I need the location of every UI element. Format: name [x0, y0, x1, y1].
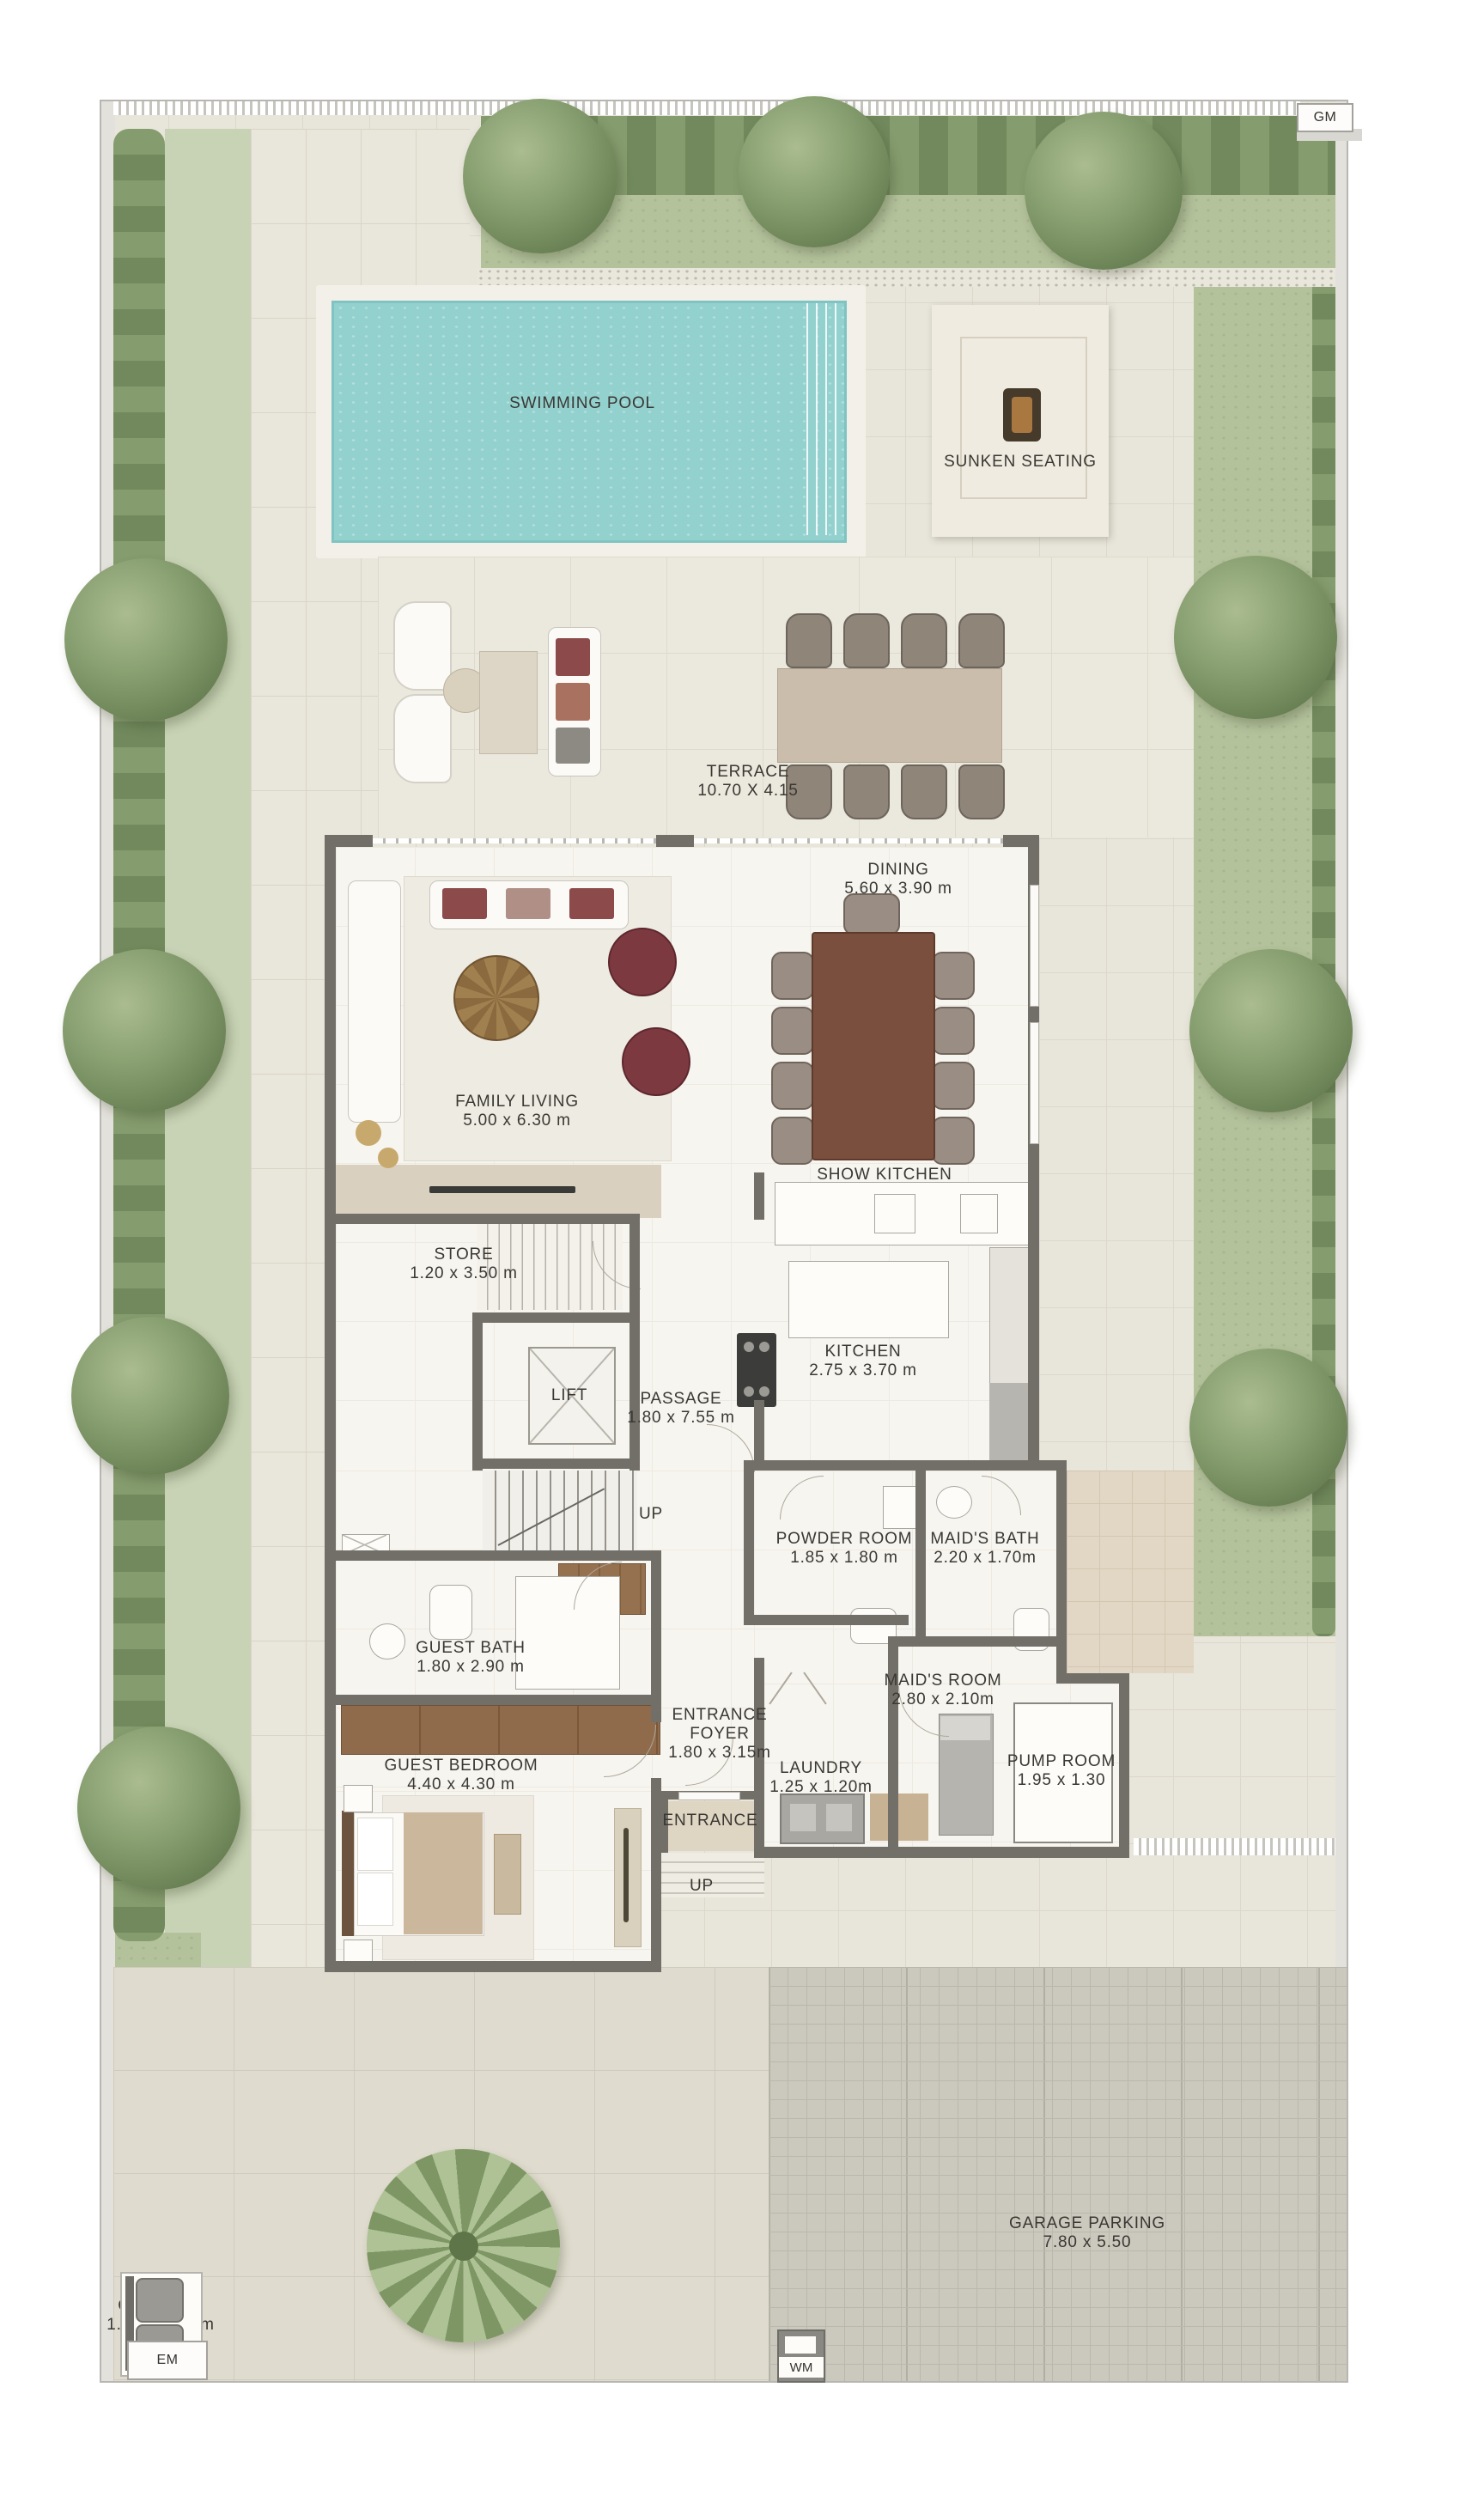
- dining-chair: [932, 952, 975, 1000]
- outdoor-sofa: [548, 627, 601, 776]
- fire-pit-coals: [1012, 397, 1032, 433]
- label-maids-bath: MAID'S BATH2.20 x 1.70m: [930, 1530, 1039, 1568]
- armchair: [608, 928, 677, 996]
- kitchen-sink: [960, 1194, 998, 1233]
- dining-table: [812, 932, 935, 1160]
- tree: [1189, 1349, 1347, 1507]
- label-terrace: TERRACE10.70 X 4.15: [697, 763, 798, 801]
- wall-segment: [336, 1695, 661, 1705]
- water-meter-window: [785, 2336, 816, 2354]
- wall-segment: [1119, 1673, 1129, 1858]
- electric-meter-label: EM: [157, 2353, 179, 2368]
- tree: [77, 1726, 240, 1890]
- label-dining: DINING5.60 x 3.90 m: [844, 861, 952, 898]
- coffee-table: [479, 651, 538, 754]
- outdoor-chair: [901, 613, 947, 668]
- tree: [1174, 556, 1337, 719]
- wall-segment: [754, 1847, 1129, 1858]
- floor-lamp: [356, 1120, 381, 1146]
- wall-segment: [744, 1471, 754, 1625]
- wall-segment: [915, 1471, 926, 1647]
- label-store: STORE1.20 x 3.50 m: [410, 1245, 518, 1283]
- garbage-bin: [136, 2278, 184, 2323]
- side-gate: [1134, 1838, 1335, 1855]
- label-kitchen: KITCHEN2.75 x 3.70 m: [809, 1343, 917, 1380]
- console-plant: [623, 1828, 629, 1922]
- living-sofa-side: [348, 880, 401, 1123]
- dining-chair: [932, 1062, 975, 1110]
- label-guest-bedroom: GUEST BEDROOM4.40 x 4.30 m: [385, 1757, 538, 1794]
- nightstand: [344, 1785, 373, 1812]
- outdoor-chair: [786, 613, 832, 668]
- outdoor-chair: [958, 764, 1005, 819]
- wall-segment: [336, 1550, 661, 1561]
- sliding-door: [1030, 1022, 1039, 1144]
- outdoor-dining-table: [777, 668, 1002, 763]
- wall-segment: [656, 835, 694, 847]
- wall-segment: [472, 1312, 483, 1471]
- sliding-door: [1030, 885, 1039, 1007]
- lounge-chair: [393, 601, 452, 691]
- pebble-strip: [477, 268, 1335, 287]
- water-meter-box: WM: [777, 2329, 825, 2383]
- tree: [64, 558, 228, 722]
- palm-tree: [367, 2149, 560, 2342]
- electric-meter-box: EM: [127, 2341, 208, 2380]
- dining-chair: [771, 1062, 814, 1110]
- wall-segment: [744, 1615, 909, 1625]
- label-pump-room: PUMP ROOM1.95 x 1.30: [1007, 1752, 1116, 1790]
- wall-segment: [754, 1172, 764, 1220]
- tree: [63, 949, 226, 1112]
- wall-segment: [325, 1961, 661, 1972]
- label-maids-room: MAID'S ROOM2.80 x 2.10m: [885, 1672, 1002, 1709]
- bed-headboard: [342, 1811, 354, 1936]
- label-laundry: LAUNDRY1.25 x 1.20m: [769, 1759, 872, 1797]
- dining-chair-head: [843, 893, 900, 935]
- label-entrance-foyer: ENTRANCEFOYER1.80 x 3.15m: [668, 1706, 770, 1763]
- living-sofa: [429, 880, 629, 929]
- bed-bench: [494, 1834, 521, 1915]
- wall-segment: [629, 1214, 640, 1323]
- wall-segment: [651, 1705, 661, 1722]
- label-entrance: ENTRANCE: [663, 1812, 758, 1830]
- dining-chair: [932, 1007, 975, 1055]
- wall-segment: [472, 1459, 640, 1469]
- label-up-inside: UP: [639, 1505, 663, 1524]
- floor-lamp: [378, 1148, 398, 1168]
- fridge: [989, 1383, 1028, 1460]
- outdoor-chair: [901, 764, 947, 819]
- bed-blanket: [404, 1812, 483, 1934]
- label-family-living: FAMILY LIVING5.00 x 6.30 m: [455, 1093, 579, 1130]
- dining-chair: [771, 1117, 814, 1165]
- kitchen-island: [788, 1261, 949, 1338]
- label-garage: GARAGE PARKING7.80 x 5.50: [1009, 2214, 1165, 2252]
- pillow: [357, 1818, 393, 1871]
- outdoor-chair: [843, 764, 890, 819]
- wall-segment: [325, 835, 336, 1972]
- guest-toilet: [429, 1585, 472, 1640]
- label-show-kitchen: SHOW KITCHEN: [817, 1166, 952, 1184]
- label-passage: PASSAGE1.80 x 7.55 m: [627, 1390, 735, 1428]
- lounge-chair: [393, 694, 452, 783]
- wall-segment: [744, 1460, 1067, 1471]
- tv: [429, 1186, 575, 1193]
- tree: [71, 1317, 229, 1475]
- tree: [739, 96, 890, 247]
- site-plot: GM EM WM SWIMMING POOL SUNKEN SEATING TE…: [101, 101, 1347, 2381]
- wall-segment: [651, 1550, 661, 1705]
- armchair: [622, 1027, 690, 1096]
- wall-segment: [1056, 1471, 1067, 1684]
- guest-sink: [369, 1623, 405, 1659]
- garage-parking-area: [769, 1967, 1347, 2381]
- wall-segment: [336, 1214, 640, 1224]
- swimming-pool: [331, 301, 847, 543]
- pillow: [357, 1873, 393, 1926]
- wall-segment: [754, 1400, 764, 1471]
- tree: [1025, 112, 1183, 270]
- dining-chair: [932, 1117, 975, 1165]
- pool-steps: [799, 303, 842, 535]
- dining-chair: [771, 952, 814, 1000]
- label-up-entry: UP: [690, 1877, 714, 1896]
- label-sunken-seating: SUNKEN SEATING: [944, 453, 1097, 472]
- glass-wall: [694, 838, 1003, 843]
- water-meter-label: WM: [779, 2357, 824, 2378]
- floor-plan-page: GM EM WM SWIMMING POOL SUNKEN SEATING TE…: [0, 0, 1484, 2509]
- kitchen-sink: [874, 1194, 915, 1233]
- side-patio: [1067, 1471, 1194, 1673]
- wall-segment: [472, 1312, 640, 1323]
- tree: [1189, 949, 1353, 1112]
- label-powder-room: POWDER ROOM1.85 x 1.80 m: [776, 1530, 913, 1568]
- stove: [737, 1333, 776, 1407]
- maids-mat: [870, 1793, 928, 1841]
- outdoor-chair: [958, 613, 1005, 668]
- label-guest-bath: GUEST BATH1.80 x 2.90 m: [416, 1639, 526, 1677]
- washer-dryer: [780, 1793, 865, 1844]
- label-swimming-pool: SWIMMING POOL: [509, 394, 655, 413]
- maids-bath-sink: [936, 1486, 972, 1519]
- round-coffee-table: [453, 955, 539, 1041]
- tree: [463, 99, 617, 253]
- label-lift: LIFT: [551, 1386, 587, 1405]
- front-door: [678, 1792, 740, 1800]
- gas-meter-label: GM: [1314, 110, 1337, 125]
- dining-chair: [771, 1007, 814, 1055]
- outdoor-chair: [843, 613, 890, 668]
- gas-meter-box: GM: [1297, 103, 1353, 132]
- glass-wall: [373, 838, 656, 843]
- staircase: [483, 1471, 637, 1556]
